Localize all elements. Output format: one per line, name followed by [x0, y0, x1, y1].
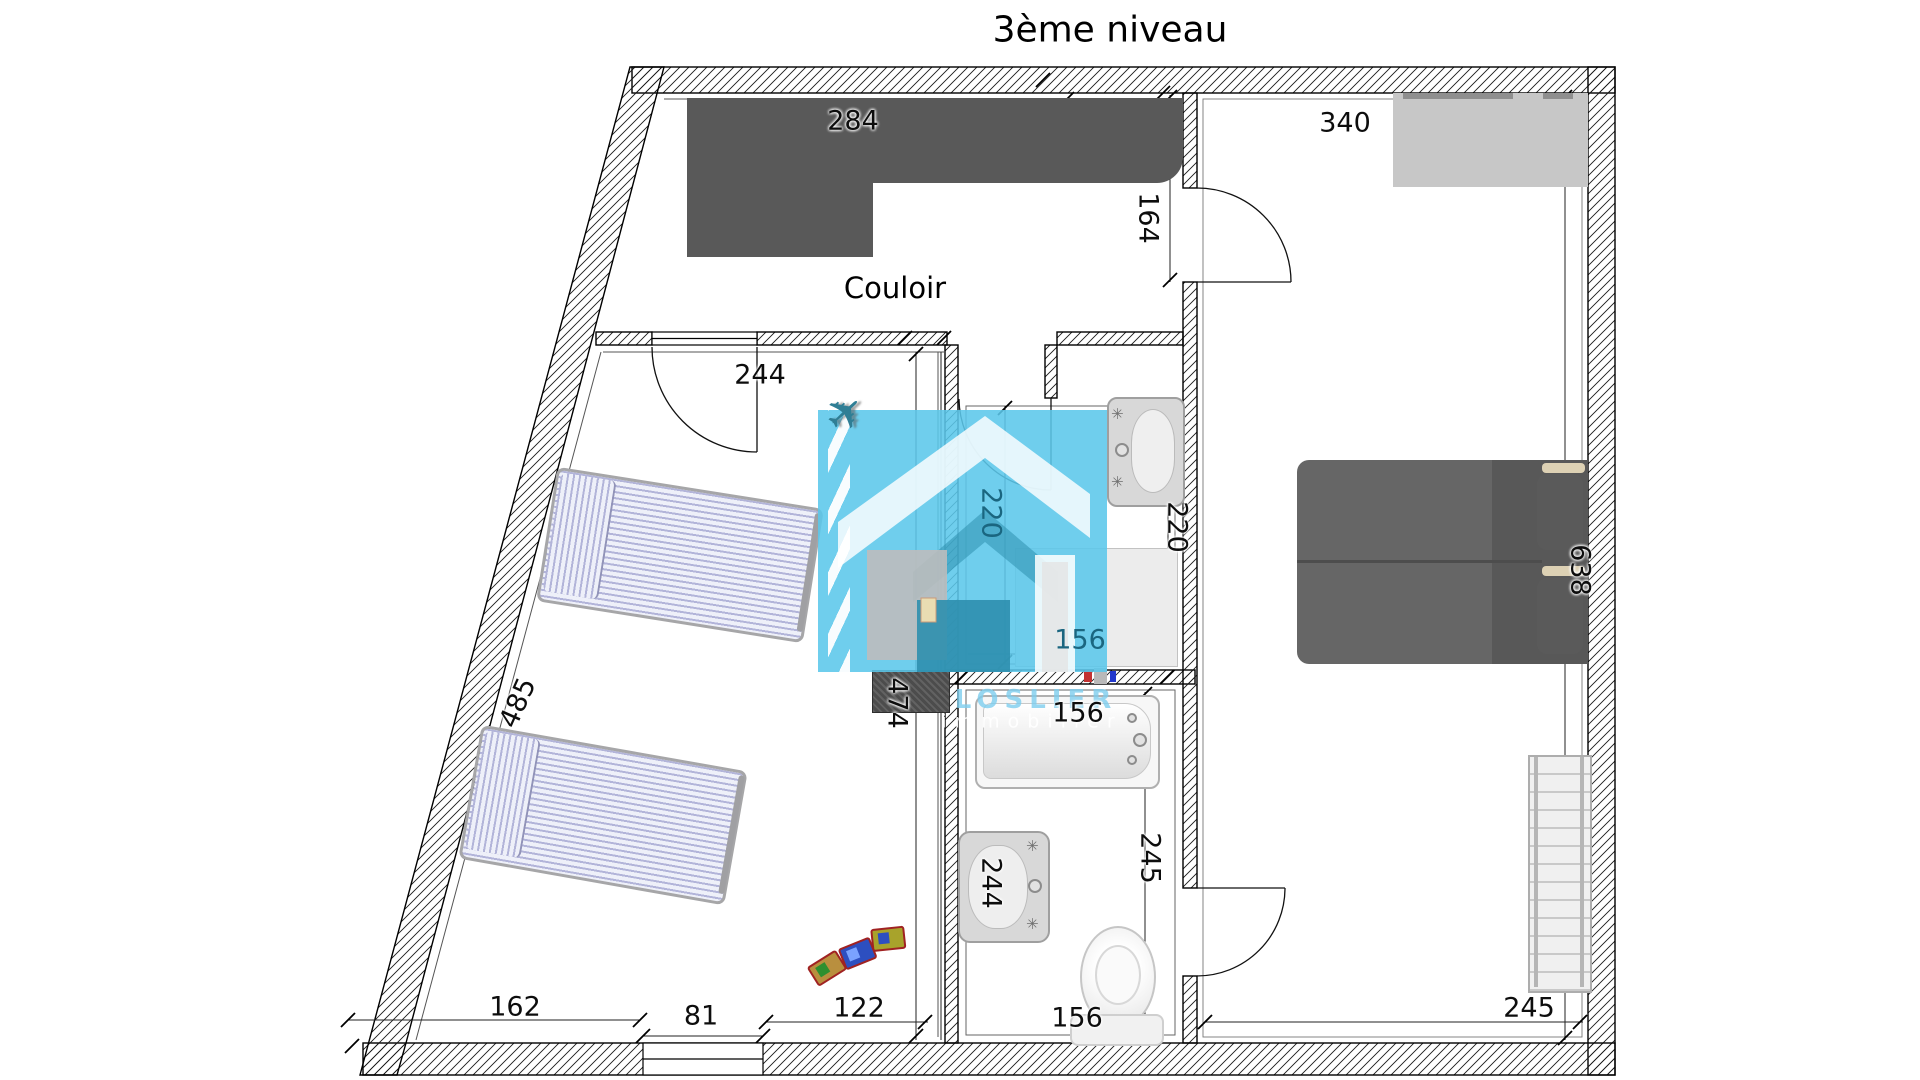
sink-basin — [1131, 409, 1175, 493]
dim-entry-depth: 164 — [1135, 192, 1162, 244]
dim-bathtub-width: 156 — [1052, 700, 1104, 727]
dim-wardrobe-width: 284 — [827, 108, 879, 135]
faucet-icon: ✳ — [1111, 407, 1124, 422]
dim-sink2: 244 — [978, 857, 1005, 909]
towel-bench — [1528, 755, 1592, 993]
wardrobe — [687, 98, 1183, 257]
train-window — [878, 932, 890, 944]
dim-wc-height: 245 — [1137, 832, 1164, 884]
sink-upper: ✳ ✳ — [1107, 397, 1185, 507]
dim-bottom-2: 81 — [684, 1003, 718, 1030]
dim-wc-width: 156 — [1051, 1005, 1103, 1032]
dim-bedroom2-bottom: 245 — [1503, 995, 1555, 1022]
faucet-icon: ✳ — [1026, 917, 1039, 932]
hot-valve — [1084, 671, 1092, 682]
pillow — [1537, 474, 1583, 550]
pillow — [465, 730, 541, 858]
toilet-bowl — [1095, 945, 1141, 1005]
train-window — [846, 947, 860, 961]
dim-bedroom2-width: 340 — [1319, 110, 1371, 137]
tub-faucet — [1127, 755, 1137, 765]
pillow — [543, 472, 617, 599]
tub-faucet — [1127, 713, 1137, 723]
windows — [643, 332, 763, 1075]
dim-bath1-depth: 156 — [1054, 627, 1106, 654]
page-title: 3ème niveau — [993, 10, 1228, 51]
dim-bottom-3: 122 — [833, 995, 885, 1022]
drain-knob — [1028, 879, 1042, 893]
closet-rail — [1543, 93, 1573, 99]
bench-rail — [1534, 757, 1538, 987]
dim-bath1-width: 220 — [1164, 501, 1191, 553]
dim-door1: 244 — [734, 362, 786, 389]
closet — [1393, 93, 1588, 187]
tub-drain — [1133, 733, 1147, 747]
double-bed — [1297, 460, 1588, 664]
faucet-icon: ✳ — [1111, 475, 1124, 490]
train-car — [870, 926, 906, 952]
drain-knob — [1115, 443, 1129, 457]
pillow-edge — [1542, 463, 1585, 473]
closet-rail — [1403, 93, 1513, 99]
room-label-corridor: Couloir — [844, 271, 946, 305]
faucet-icon: ✳ — [1026, 839, 1039, 854]
dim-bedroom1-wall: 474 — [884, 677, 911, 729]
dim-bedroom2-height: 638 — [1567, 544, 1594, 596]
wardrobe-right-section — [873, 98, 1183, 183]
bed-split-line — [1297, 560, 1542, 563]
floorplan-page: ✳ ✳ ✳ ✳ ✈ — [0, 0, 1920, 1080]
dim-bottom-1: 162 — [489, 994, 541, 1021]
cold-valve — [1110, 671, 1116, 682]
dim-bath1-width-inner: 220 — [978, 487, 1005, 539]
train-window — [815, 962, 830, 977]
bench-rail — [1580, 757, 1584, 987]
